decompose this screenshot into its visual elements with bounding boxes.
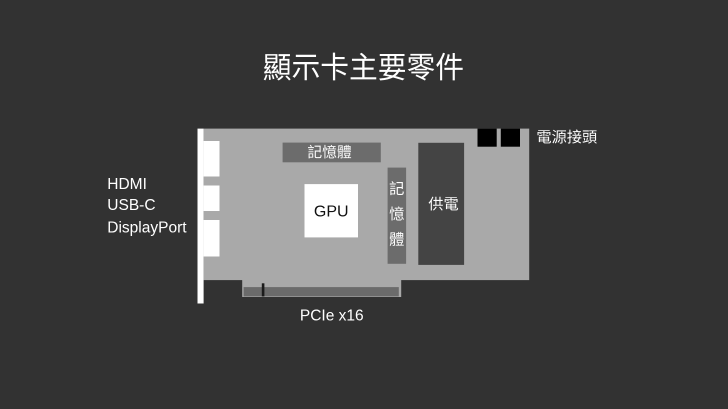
svg-text:HDMI: HDMI bbox=[107, 176, 147, 193]
svg-text:USB-C: USB-C bbox=[107, 197, 155, 214]
svg-text:PCIe x16: PCIe x16 bbox=[300, 308, 364, 325]
svg-text:GPU: GPU bbox=[314, 204, 349, 221]
svg-text:DisplayPort: DisplayPort bbox=[107, 219, 187, 236]
